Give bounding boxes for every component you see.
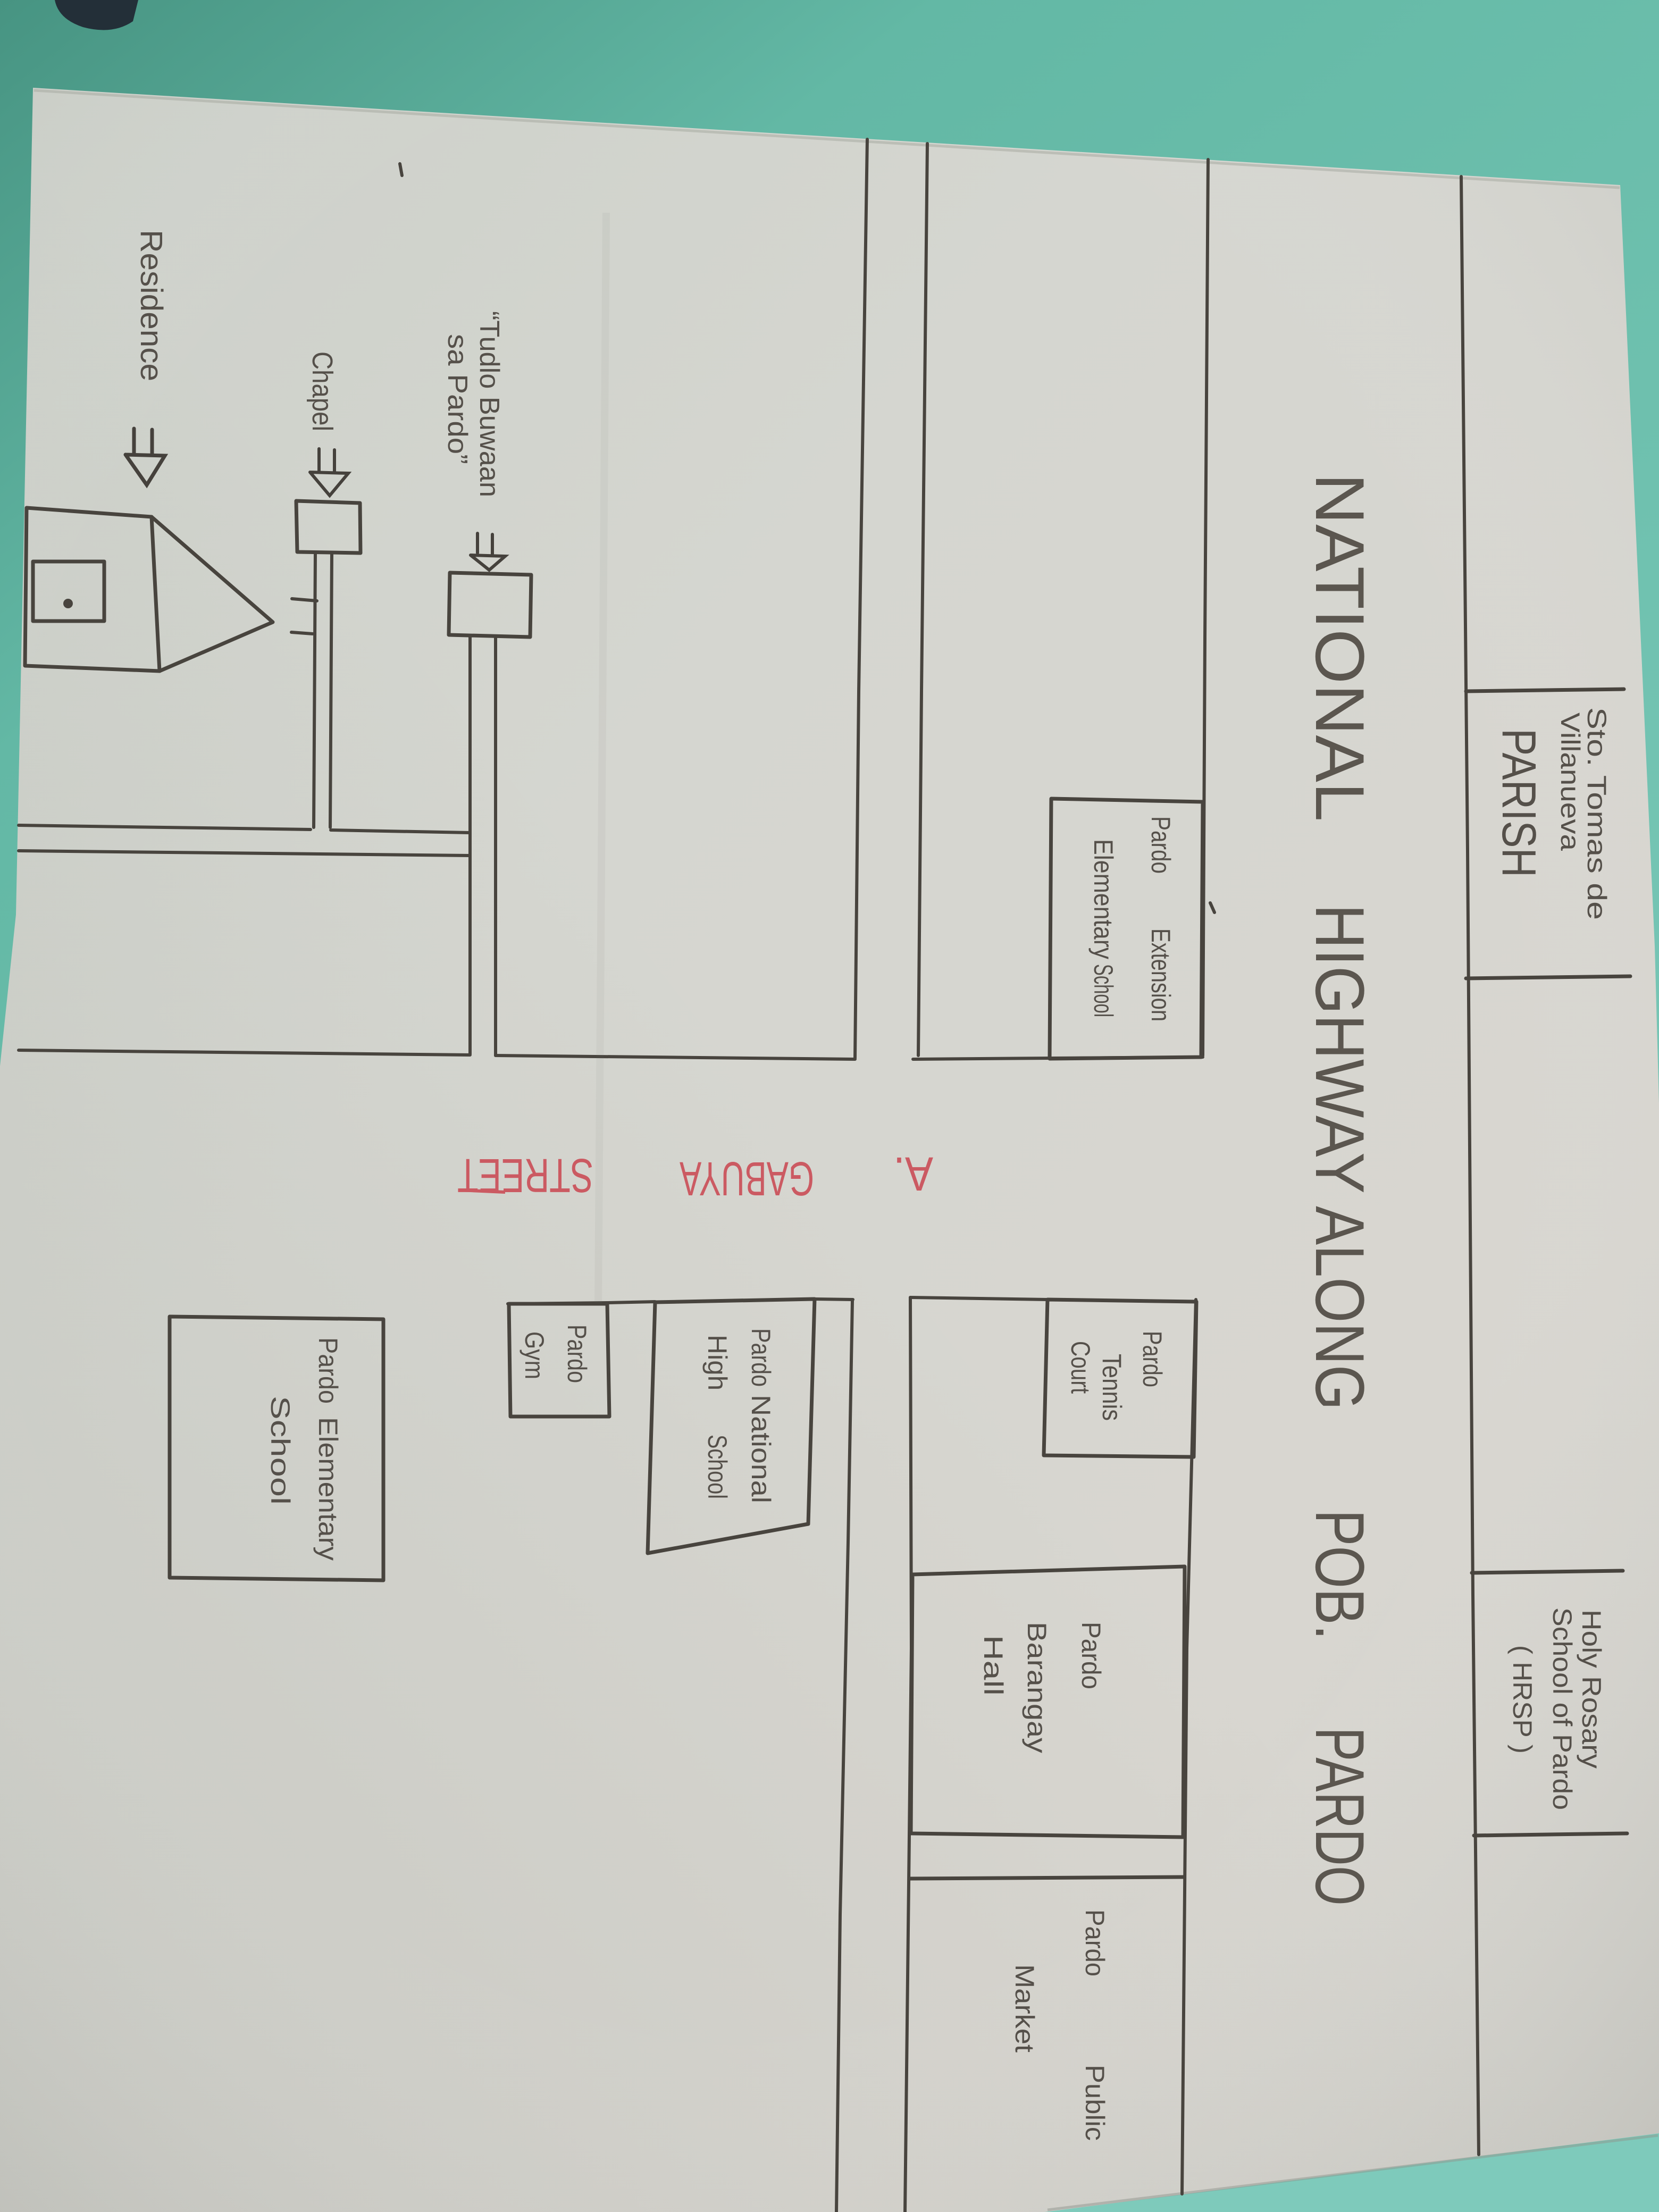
svg-text:Elementary: Elementary xyxy=(1088,839,1118,959)
svg-text:Public: Public xyxy=(1080,2065,1110,2141)
svg-text:POB.: POB. xyxy=(1301,1510,1379,1640)
svg-text:School: School xyxy=(1088,964,1118,1017)
svg-text:Pardo: Pardo xyxy=(562,1325,592,1383)
svg-text:PARISH: PARISH xyxy=(1492,728,1545,877)
svg-text:Elementary: Elementary xyxy=(313,1417,343,1561)
svg-text:Barangay: Barangay xyxy=(1022,1622,1052,1753)
svg-text:Pardo: Pardo xyxy=(1146,816,1176,874)
svg-text:Tennis: Tennis xyxy=(1097,1354,1127,1421)
svg-text:Extension: Extension xyxy=(1146,928,1176,1021)
svg-text:STREET: STREET xyxy=(457,1149,593,1202)
svg-text:Pardo: Pardo xyxy=(1076,1622,1106,1689)
svg-text:Market: Market xyxy=(1010,1964,1040,2052)
svg-text:Chapel: Chapel xyxy=(306,351,338,431)
svg-text:Residence: Residence xyxy=(134,230,169,381)
svg-text:( HRSP ): ( HRSP ) xyxy=(1507,1645,1537,1754)
svg-text:“Tudlo Buwaan: “Tudlo Buwaan xyxy=(474,311,505,497)
svg-text:Pardo: Pardo xyxy=(1137,1331,1167,1387)
svg-text:Sto. Tomas de: Sto. Tomas de xyxy=(1582,707,1612,920)
svg-text:Hall: Hall xyxy=(978,1635,1008,1696)
svg-text:National: National xyxy=(746,1395,776,1503)
svg-text:High: High xyxy=(702,1335,732,1390)
svg-text:HIGHWAY: HIGHWAY xyxy=(1301,904,1379,1194)
svg-text:NATIONAL: NATIONAL xyxy=(1301,473,1379,822)
svg-text:Gym: Gym xyxy=(520,1331,549,1379)
svg-text:School of Pardo: School of Pardo xyxy=(1547,1607,1577,1810)
svg-text:Court: Court xyxy=(1066,1341,1095,1394)
svg-text:School: School xyxy=(265,1396,295,1505)
svg-text:Pardo: Pardo xyxy=(1080,1909,1110,1976)
svg-text:PARDO: PARDO xyxy=(1301,1727,1379,1906)
svg-text:Pardo: Pardo xyxy=(313,1337,343,1404)
svg-text:Holy Rosary: Holy Rosary xyxy=(1577,1610,1606,1769)
svg-text:A.: A. xyxy=(893,1147,933,1200)
svg-text:Pardo: Pardo xyxy=(746,1328,776,1387)
svg-text:ALONG: ALONG xyxy=(1301,1206,1379,1410)
svg-text:Villanueva: Villanueva xyxy=(1555,713,1585,851)
svg-text:GABUYA: GABUYA xyxy=(680,1152,814,1205)
svg-text:School: School xyxy=(702,1435,732,1499)
svg-text:sa Pardo”: sa Pardo” xyxy=(442,334,473,464)
